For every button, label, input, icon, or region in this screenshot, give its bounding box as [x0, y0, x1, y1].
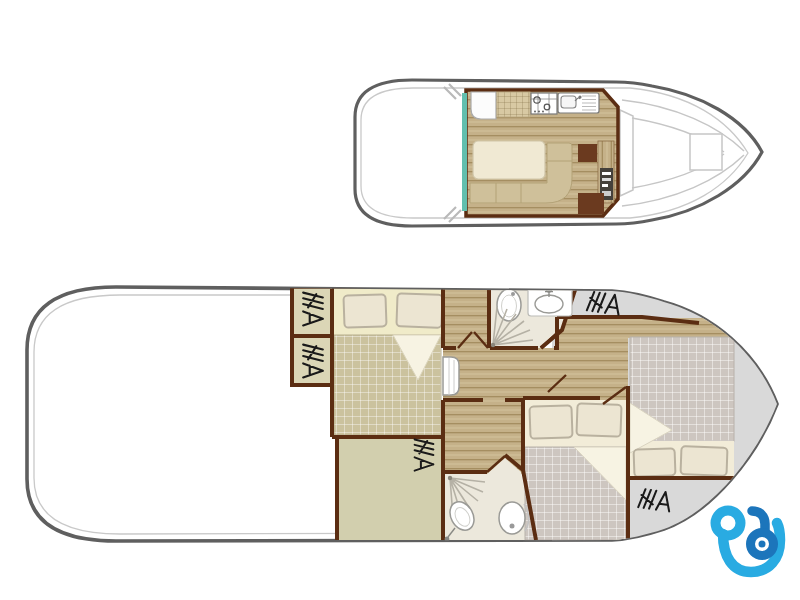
aft-cabin-bed [334, 287, 443, 437]
upper-deck-plan [355, 80, 762, 226]
sliding-door-teal [462, 93, 467, 211]
fridge [471, 92, 496, 119]
pillow [634, 448, 676, 476]
dinette-table [473, 141, 545, 179]
boat-floorplan-image [0, 0, 800, 600]
floorplan-canvas [0, 0, 800, 600]
bow-cabin-bed [630, 337, 734, 478]
storage-room-floor [339, 439, 441, 540]
middle-cabin-bed [525, 400, 626, 540]
washbasin-icon [528, 288, 572, 316]
pillow [343, 294, 386, 327]
cabinet-top [578, 144, 597, 162]
companionway-steps [443, 357, 459, 395]
cabinet-bottom [578, 193, 604, 214]
sink-icon [558, 93, 599, 113]
bow-hatch [690, 134, 722, 170]
brand-logo-b-icon [716, 511, 781, 573]
pillow [681, 446, 728, 476]
pillow [576, 403, 621, 437]
wardrobe-lower [294, 338, 332, 383]
stove-icon [531, 93, 557, 114]
pillow [396, 293, 442, 328]
galley-counter [497, 92, 530, 117]
toilet-icon [497, 289, 521, 321]
lower-deck-plan [27, 283, 792, 548]
pillow [529, 405, 572, 438]
